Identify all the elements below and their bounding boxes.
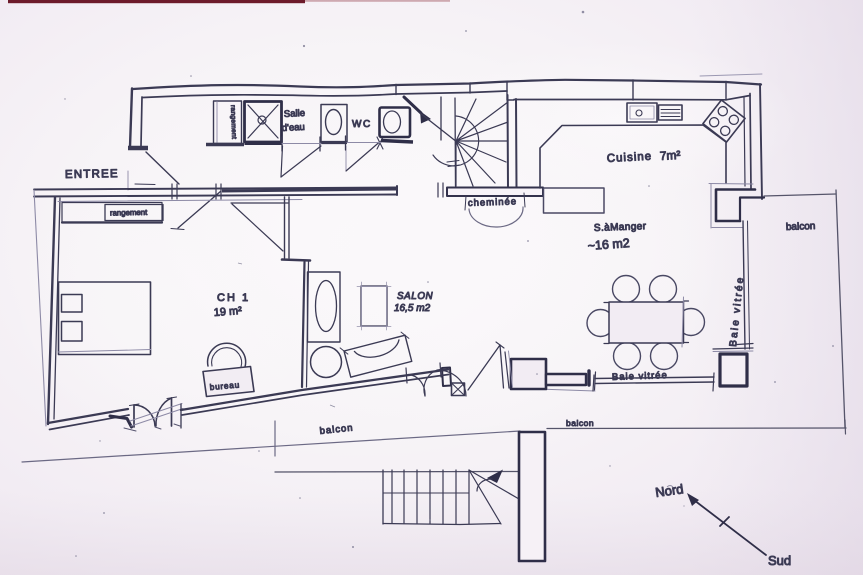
svg-text:~16 m2: ~16 m2 <box>587 236 630 253</box>
svg-text:Sud: Sud <box>768 553 791 568</box>
svg-text:CH 1: CH 1 <box>217 292 250 304</box>
svg-text:balcon: balcon <box>566 418 594 428</box>
svg-text:rangement: rangement <box>110 208 148 218</box>
svg-text:balcon: balcon <box>786 221 816 233</box>
svg-text:19 m²: 19 m² <box>213 305 242 319</box>
svg-text:cheminée: cheminée <box>468 196 518 209</box>
svg-text:16,5 m2: 16,5 m2 <box>394 303 431 314</box>
svg-text:WC: WC <box>352 119 372 130</box>
svg-text:Cuisine: Cuisine <box>607 151 653 165</box>
svg-text:d'eau: d'eau <box>282 122 305 134</box>
svg-text:S.àManger: S.àManger <box>594 221 647 234</box>
svg-text:Salle: Salle <box>284 108 306 120</box>
svg-text:Baie vitrée: Baie vitrée <box>612 370 668 383</box>
svg-text:ENTREE: ENTREE <box>65 168 119 181</box>
svg-text:SALON: SALON <box>397 291 434 302</box>
svg-text:7m²: 7m² <box>659 148 680 163</box>
svg-text:rangement: rangement <box>229 105 237 139</box>
